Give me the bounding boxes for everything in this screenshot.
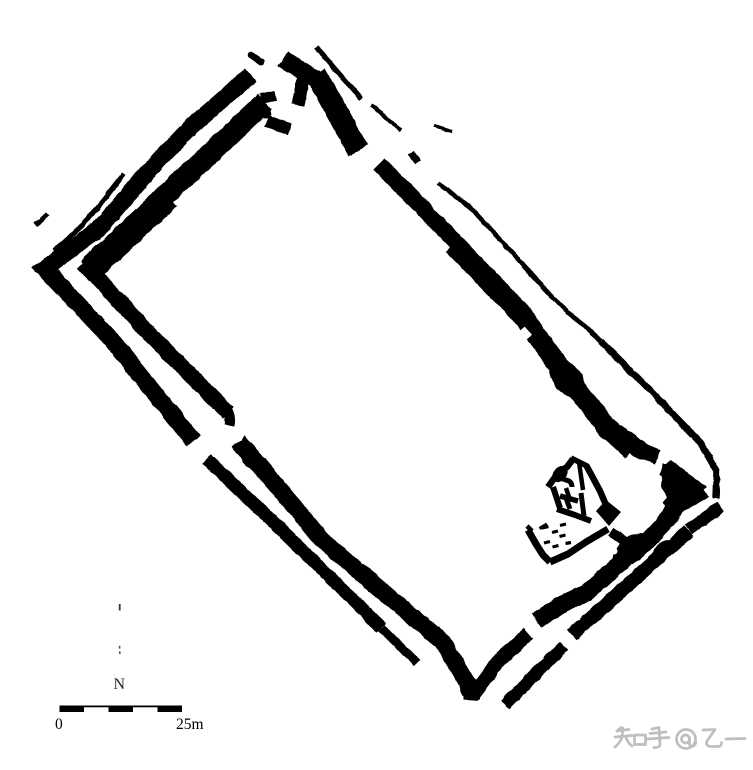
svg-text:N: N — [114, 676, 126, 693]
svg-text:25m: 25m — [176, 716, 204, 733]
svg-text:0: 0 — [55, 716, 63, 733]
